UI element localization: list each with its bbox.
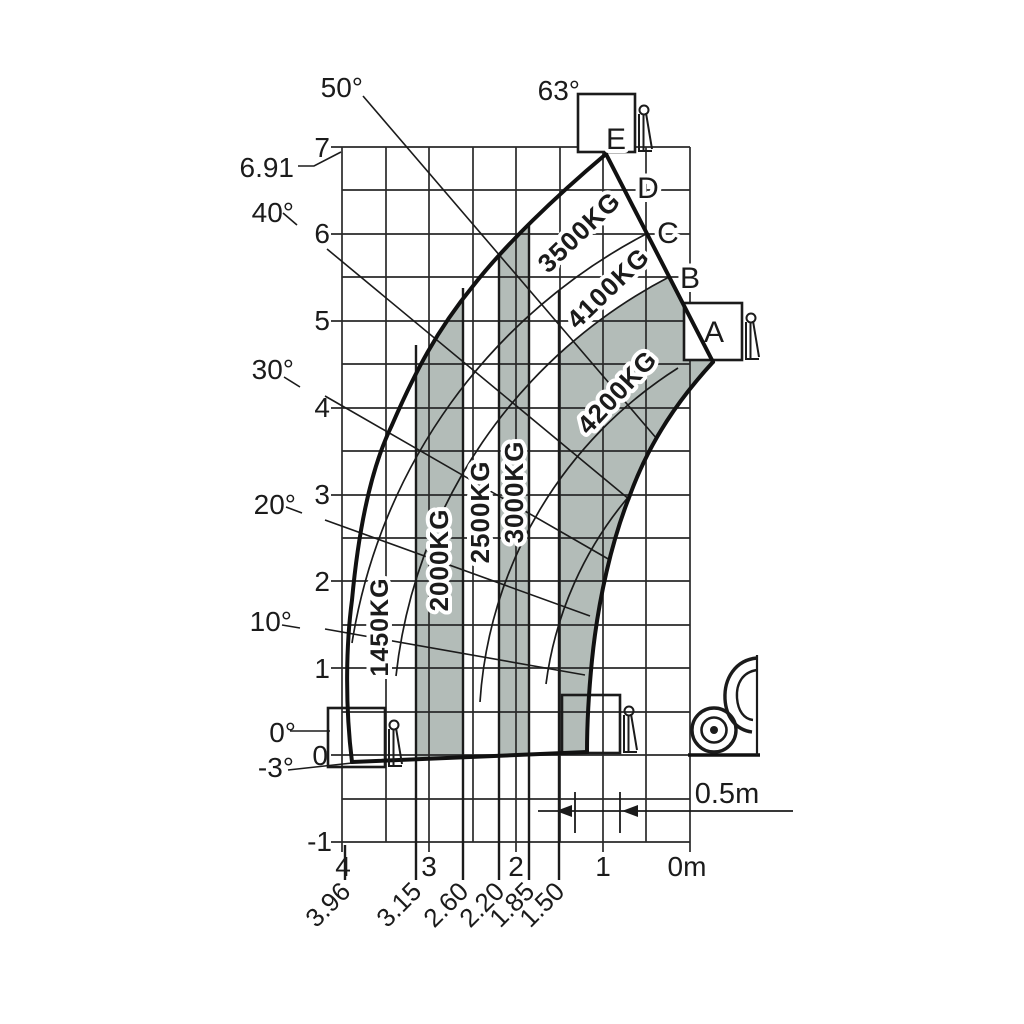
reach-tick-0m: 0m <box>668 851 707 882</box>
offset-label: 0.5m <box>695 778 759 810</box>
height-tick-2: 2 <box>314 566 330 597</box>
height-tick-6: 6 <box>314 218 330 249</box>
load-chart-page: 0.5m 7 6 5 4 3 2 1 0 -1 6.91 4 3 2 1 0m … <box>0 0 1024 1024</box>
stage-a: A <box>704 316 724 349</box>
stage-e: E <box>606 123 626 156</box>
capacity-3000: 3000KG <box>499 441 529 544</box>
stage-c: C <box>657 217 679 250</box>
capacity-2000: 2000KG <box>424 509 454 612</box>
reach-tick-2: 2 <box>508 851 524 882</box>
angle-30: 30° <box>252 354 294 385</box>
angle-neg3: -3° <box>258 752 294 783</box>
angle-40: 40° <box>252 197 294 228</box>
capacity-1450: 1450KG <box>366 577 394 676</box>
angle-63: 63° <box>538 75 580 106</box>
height-tick-7: 7 <box>314 132 330 163</box>
angle-20: 20° <box>254 489 296 520</box>
load-chart-figure: 0.5m 7 6 5 4 3 2 1 0 -1 6.91 4 3 2 1 0m … <box>0 0 1024 1024</box>
height-tick-5: 5 <box>314 305 330 336</box>
reach-tick-4: 4 <box>335 851 351 882</box>
stage-b: B <box>680 262 700 295</box>
reach-tick-1: 1 <box>595 851 611 882</box>
height-tick-0: 0 <box>312 740 328 771</box>
angle-50: 50° <box>321 72 363 103</box>
height-tick-3: 3 <box>314 479 330 510</box>
stage-d: D <box>637 172 659 205</box>
reach-tick-3: 3 <box>421 851 437 882</box>
angle-10: 10° <box>250 606 292 637</box>
height-tick-4: 4 <box>314 392 330 423</box>
max-height-label: 6.91 <box>240 152 295 183</box>
height-tick-neg1: -1 <box>307 826 332 857</box>
capacity-2500: 2500KG <box>465 461 495 564</box>
height-tick-1: 1 <box>314 653 330 684</box>
angle-0: 0° <box>269 717 296 748</box>
